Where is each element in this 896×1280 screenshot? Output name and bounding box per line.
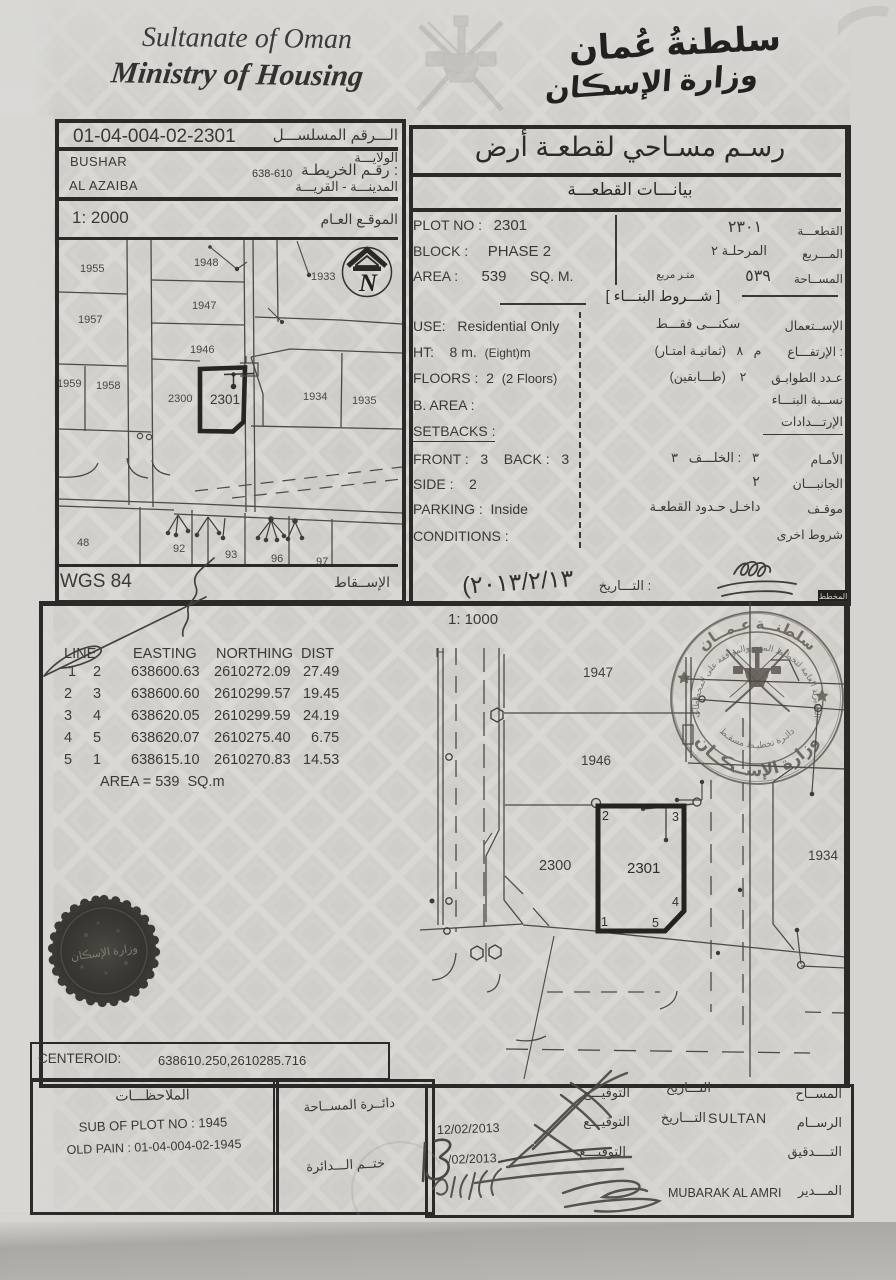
svg-text:1957: 1957 [78, 314, 102, 326]
svg-text:1958: 1958 [96, 380, 120, 392]
svg-text:3: 3 [672, 810, 679, 824]
svg-text:48: 48 [77, 537, 89, 549]
svg-text:1: 1 [601, 915, 608, 929]
svg-text:97: 97 [316, 556, 328, 564]
svg-text:2301: 2301 [210, 392, 240, 407]
svg-text:1934: 1934 [303, 391, 327, 403]
svg-text:1955: 1955 [80, 263, 104, 275]
svg-text:1946: 1946 [581, 753, 611, 768]
svg-text:دائـرة تخطيـط مسقـط: دائـرة تخطيـط مسقـط [718, 726, 797, 750]
svg-text:2300: 2300 [168, 393, 192, 405]
svg-text:1935: 1935 [352, 395, 376, 407]
svg-text:2: 2 [602, 809, 609, 823]
svg-text:1948: 1948 [194, 257, 218, 269]
svg-text:1959: 1959 [59, 378, 81, 390]
svg-text:96: 96 [271, 553, 283, 564]
svg-text:4: 4 [672, 895, 679, 909]
svg-text:2300: 2300 [539, 858, 571, 874]
svg-text:وزارة الإســڪــان: وزارة الإســڪــان [692, 732, 823, 780]
svg-text:1934: 1934 [808, 848, 839, 863]
svg-text:N: N [358, 270, 378, 297]
svg-text:1933: 1933 [311, 271, 335, 283]
svg-text:1947: 1947 [583, 665, 613, 680]
svg-text:1947: 1947 [192, 300, 216, 312]
svg-text:5: 5 [652, 916, 659, 930]
svg-text:1946: 1946 [190, 344, 214, 356]
svg-text:2301: 2301 [627, 860, 660, 877]
